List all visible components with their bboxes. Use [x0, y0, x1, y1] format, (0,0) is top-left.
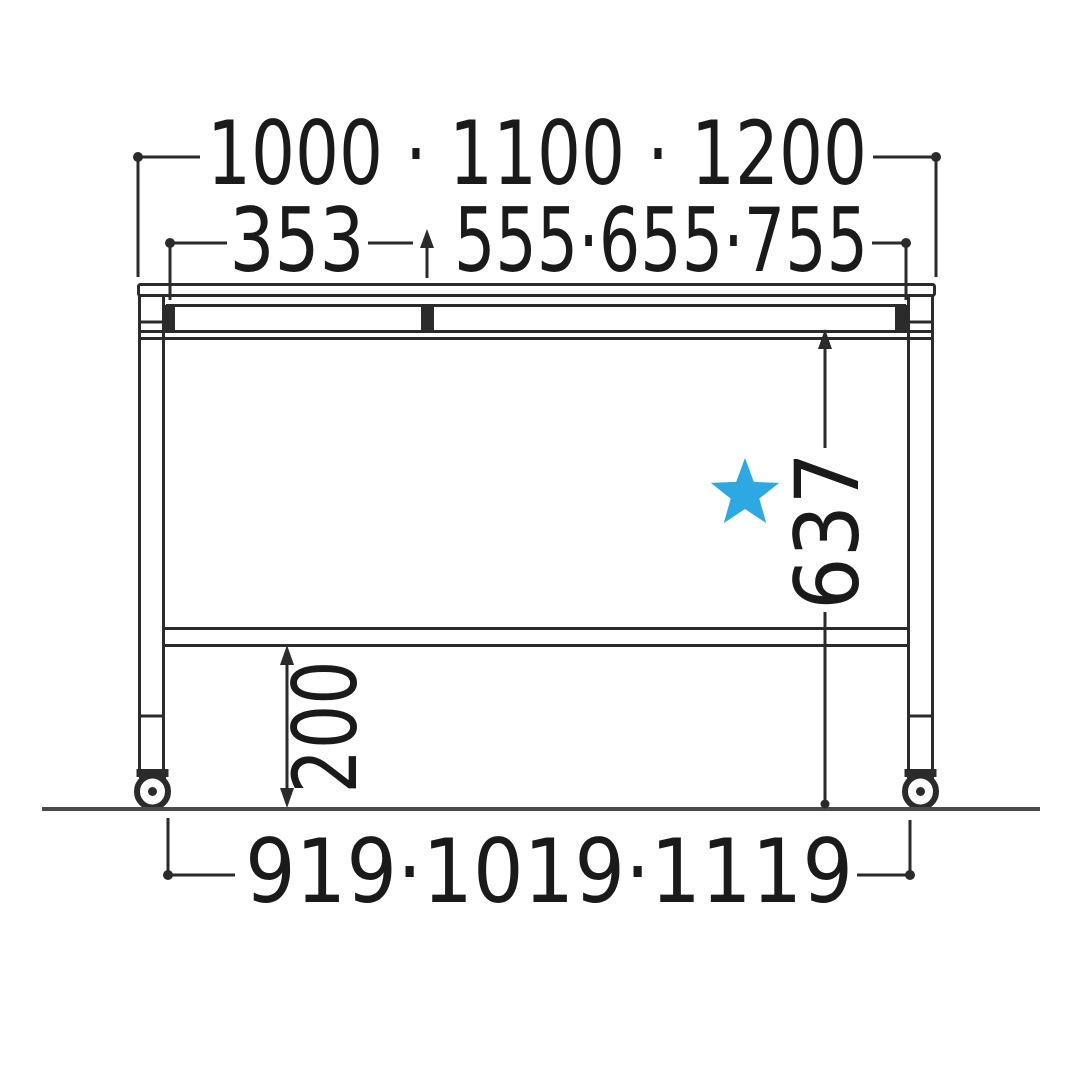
apron-end-cap-right: [895, 305, 908, 332]
apron-divider: [421, 305, 434, 332]
dimension-caster-span: 919·1019·1119: [163, 818, 915, 923]
dim-label-frame-height: 637: [776, 452, 879, 610]
dim-dot: [163, 870, 173, 880]
dim-dot: [905, 870, 915, 880]
leg-left: [138, 296, 165, 770]
caster-right: [905, 769, 937, 808]
dim-label-shelf-height: 200: [274, 661, 377, 794]
dim-dot: [165, 238, 175, 248]
table-structure: [42, 285, 1040, 810]
star-icon: [711, 458, 779, 523]
dim-label-caster-span: 919·1019·1119: [245, 820, 853, 923]
leg-right: [907, 296, 934, 770]
dim-label-left-section: 353: [230, 189, 365, 292]
dim-dot: [931, 152, 941, 162]
dim-label-right-section: 555·655·755: [454, 189, 868, 292]
caster-right-hub: [916, 787, 925, 796]
lower-shelf: [165, 629, 907, 646]
dimension-frame-height: 637: [776, 329, 879, 809]
furniture-dimension-diagram: 1000 · 1100 · 1200 353 555·655·755 637 2…: [0, 0, 1080, 1080]
caster-left: [137, 769, 169, 808]
dimension-sections: 353 555·655·755: [165, 189, 911, 300]
dimension-shelf-height: 200: [274, 645, 377, 808]
dim-dot: [901, 238, 911, 248]
dim-arrow-up: [420, 229, 434, 248]
dim-dot: [821, 800, 830, 809]
dim-dot: [133, 152, 143, 162]
caster-left-hub: [148, 787, 157, 796]
